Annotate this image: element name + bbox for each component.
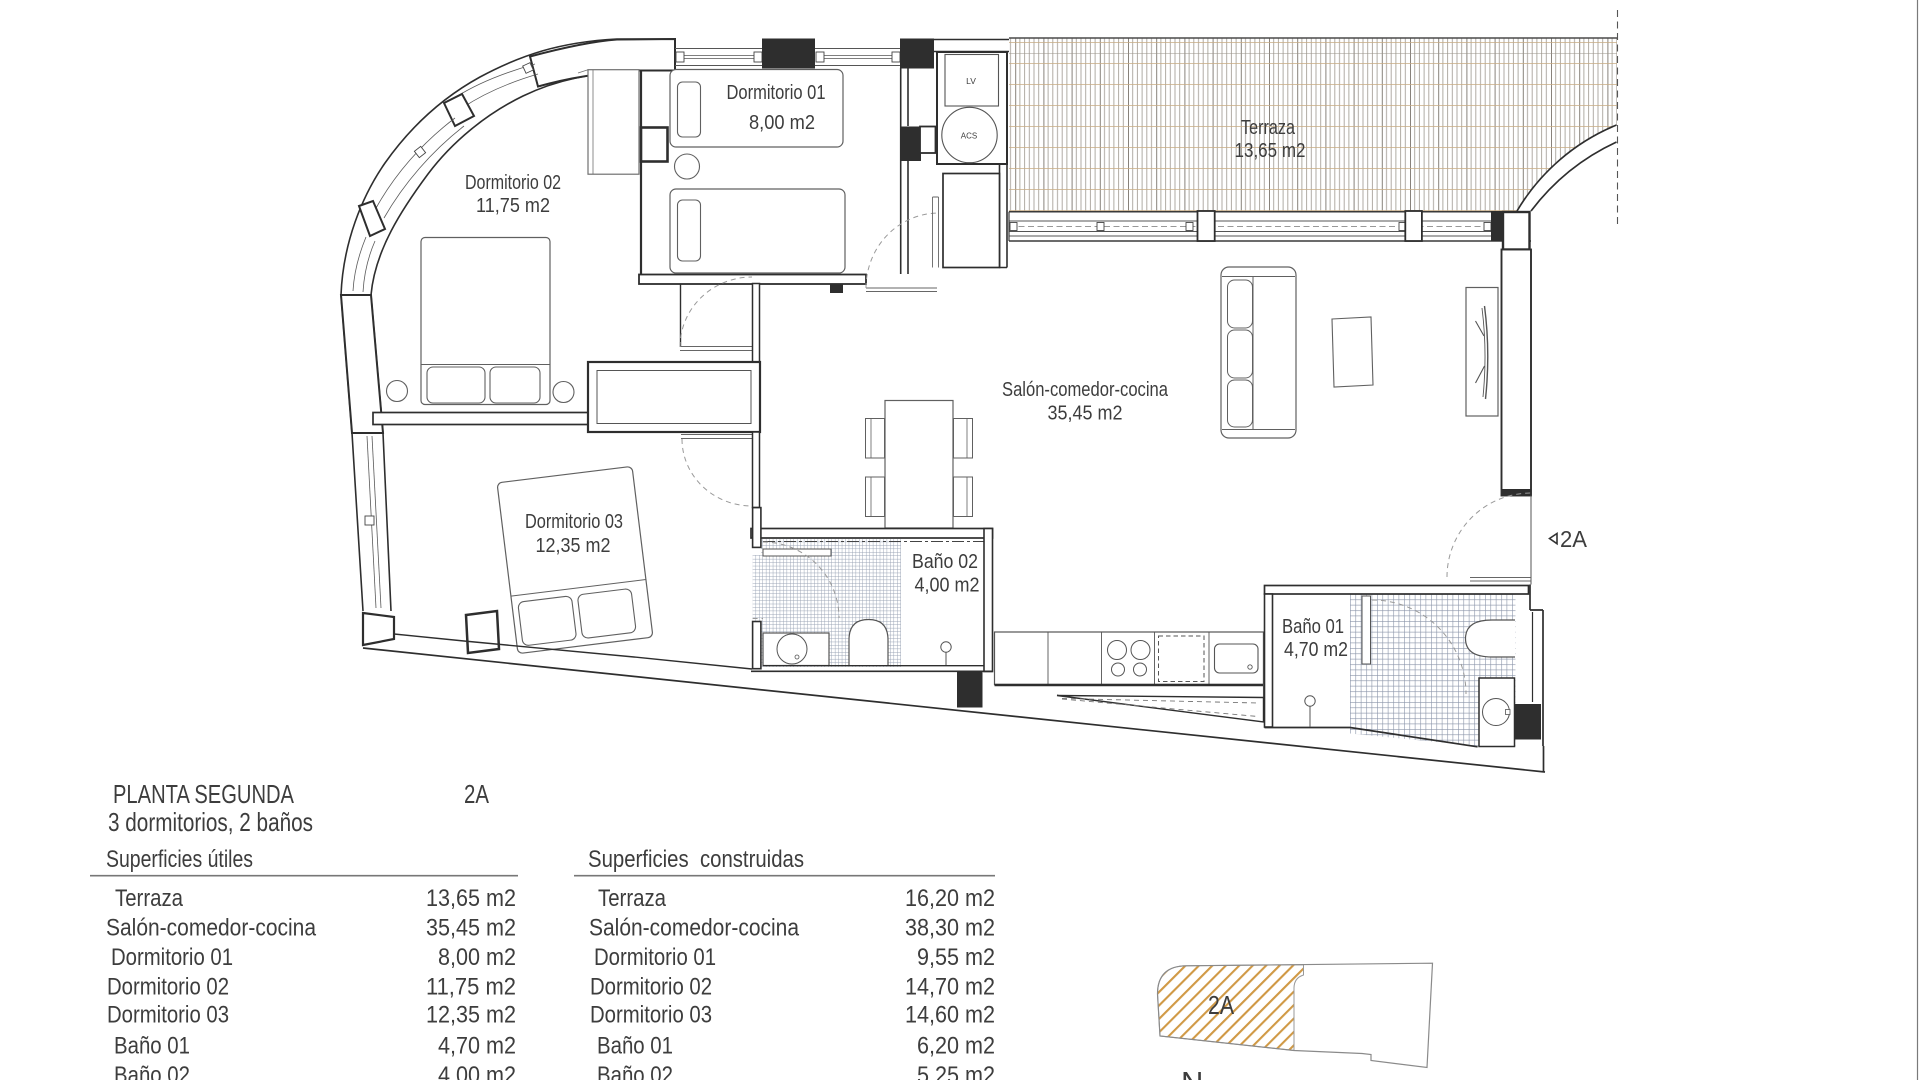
svg-text:Salón-comedor-cocina: Salón-comedor-cocina: [589, 915, 800, 942]
svg-text:Dormitorio 02: Dormitorio 02: [590, 974, 712, 1001]
svg-text:14,60 m2: 14,60 m2: [905, 1002, 995, 1029]
svg-text:Dormitorio 01: Dormitorio 01: [111, 944, 233, 971]
svg-text:Salón-comedor-cocina: Salón-comedor-cocina: [1002, 378, 1168, 401]
svg-text:PLANTA SEGUNDA: PLANTA SEGUNDA: [113, 779, 295, 809]
svg-text:Baño 01: Baño 01: [1282, 615, 1344, 638]
svg-text:Terraza: Terraza: [115, 885, 184, 912]
svg-text:Baño 02: Baño 02: [912, 550, 978, 573]
svg-text:14,70 m2: 14,70 m2: [905, 974, 995, 1001]
svg-text:13,65 m2: 13,65 m2: [1235, 139, 1306, 162]
svg-text:2A: 2A: [1560, 526, 1588, 552]
svg-text:Dormitorio 03: Dormitorio 03: [107, 1002, 229, 1029]
svg-text:12,35 m2: 12,35 m2: [536, 534, 611, 557]
svg-text:8,00 m2: 8,00 m2: [438, 944, 516, 971]
svg-text:4,70 m2: 4,70 m2: [1284, 638, 1348, 661]
svg-text:11,75 m2: 11,75 m2: [476, 194, 550, 217]
svg-text:Dormitorio 02: Dormitorio 02: [465, 171, 561, 194]
svg-text:Baño 02: Baño 02: [114, 1062, 190, 1080]
svg-text:2A: 2A: [464, 779, 490, 809]
svg-text:Superficies construidas: Superficies construidas: [588, 846, 804, 873]
svg-text:Baño 01: Baño 01: [114, 1033, 190, 1060]
svg-text:Dormitorio 02: Dormitorio 02: [107, 974, 229, 1001]
svg-text:Baño 01: Baño 01: [597, 1033, 673, 1060]
svg-text:5,25 m2: 5,25 m2: [917, 1062, 995, 1080]
svg-text:LV: LV: [966, 76, 976, 86]
svg-text:2A: 2A: [1208, 990, 1235, 1020]
svg-text:12,35 m2: 12,35 m2: [426, 1002, 516, 1029]
svg-text:ACS: ACS: [961, 132, 977, 141]
svg-text:13,65 m2: 13,65 m2: [426, 885, 516, 912]
svg-text:Baño 02: Baño 02: [597, 1062, 673, 1080]
svg-text:N: N: [1181, 1065, 1203, 1080]
svg-text:4,00 m2: 4,00 m2: [438, 1062, 516, 1080]
svg-text:Dormitorio 03: Dormitorio 03: [590, 1002, 712, 1029]
svg-text:11,75 m2: 11,75 m2: [426, 974, 516, 1001]
svg-text:Dormitorio 03: Dormitorio 03: [525, 510, 623, 533]
svg-text:6,20 m2: 6,20 m2: [917, 1033, 995, 1060]
svg-text:3 dormitorios, 2 baños: 3 dormitorios, 2 baños: [108, 807, 313, 837]
svg-text:16,20 m2: 16,20 m2: [905, 885, 995, 912]
svg-text:35,45 m2: 35,45 m2: [426, 915, 516, 942]
svg-text:Dormitorio 01: Dormitorio 01: [727, 81, 826, 104]
svg-text:Dormitorio 01: Dormitorio 01: [594, 944, 716, 971]
svg-text:Superficies útiles: Superficies útiles: [106, 846, 253, 873]
svg-text:8,00 m2: 8,00 m2: [749, 111, 815, 134]
svg-text:38,30 m2: 38,30 m2: [905, 915, 995, 942]
svg-text:9,55 m2: 9,55 m2: [917, 944, 995, 971]
svg-text:35,45 m2: 35,45 m2: [1048, 402, 1123, 425]
svg-text:4,00 m2: 4,00 m2: [915, 574, 980, 597]
svg-text:Terraza: Terraza: [598, 885, 667, 912]
svg-text:4,70 m2: 4,70 m2: [438, 1033, 516, 1060]
svg-text:Terraza: Terraza: [1241, 116, 1295, 139]
svg-text:Salón-comedor-cocina: Salón-comedor-cocina: [106, 915, 317, 942]
